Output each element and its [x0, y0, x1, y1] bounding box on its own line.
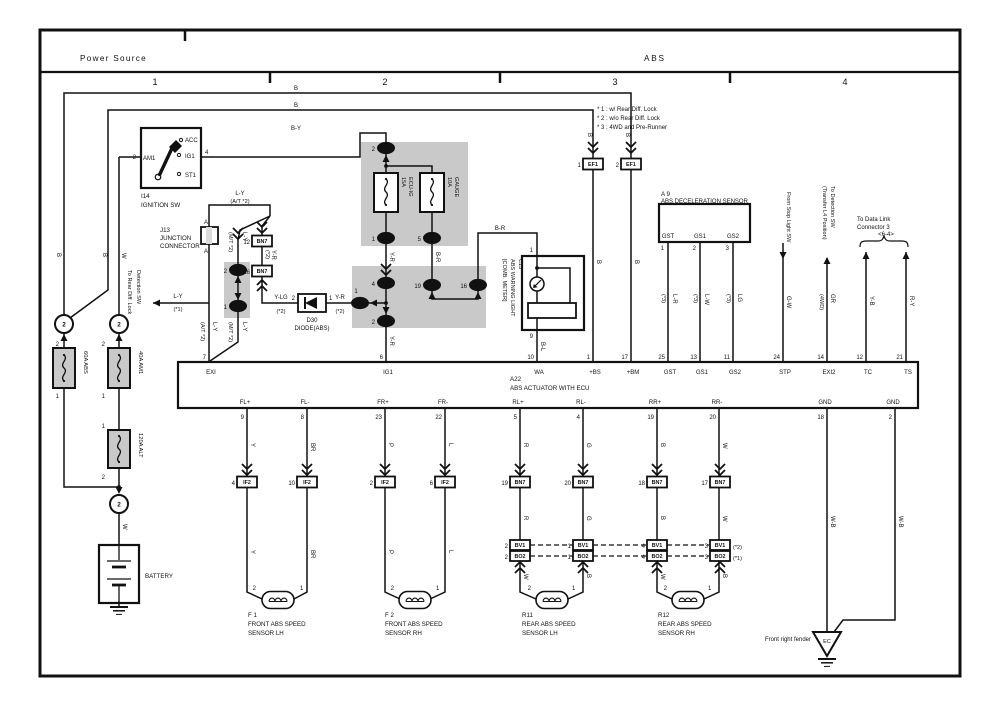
ecu-pin-label: EXI2: [822, 370, 836, 376]
ecu-pin-number: 22: [435, 415, 442, 421]
connector-label: BO2: [714, 554, 725, 560]
diagram-label: G: [585, 443, 591, 448]
junction-dot: [384, 164, 388, 168]
sensor-label: SENSOR RH: [385, 630, 422, 637]
sensor-label: FRONT ABS SPEED: [248, 621, 306, 628]
diagram-label: From Stop Light SW: [785, 192, 791, 243]
diagram-label: 2: [391, 586, 395, 592]
abs-wiring-diagram-page: 1I21G11F53B23B13H13H43H23D193D16EF11EF12…: [0, 0, 1000, 706]
diagram-label: * 1 : w/ Rear Diff. Lock: [597, 107, 658, 113]
diagram-label: W: [721, 443, 727, 449]
diagram-label: B-L: [539, 342, 545, 352]
connector-label: 3H: [383, 281, 390, 287]
diagram-label: R: [522, 443, 528, 448]
sensor-label: SENSOR LH: [248, 630, 284, 637]
diagram-label: G-W: [785, 296, 791, 309]
diagram-label: P: [387, 443, 393, 447]
diagram-label: B: [624, 133, 630, 137]
diagram-label: GR: [829, 294, 835, 304]
diagram-label: ABS WARNING LIGHT: [509, 259, 515, 317]
sensor-label: SENSOR RH: [658, 630, 695, 637]
wire: [209, 205, 270, 227]
pin-number: 2: [505, 555, 509, 561]
ecu-pin-label: WA: [534, 370, 543, 376]
diagram-label: AM1: [143, 156, 156, 162]
diagram-label: A 9: [661, 191, 671, 198]
diagram-label: <6-4>: [878, 232, 894, 238]
diagram-label: L-Y: [211, 322, 217, 331]
connector-label: BV1: [515, 543, 526, 549]
diagram-label: L-Y: [241, 322, 247, 331]
chevron-arrow-icon: [257, 222, 267, 227]
connector-label: BN7: [578, 480, 589, 486]
wire: [568, 561, 583, 599]
diagram-label: J13: [160, 227, 171, 234]
diagram-label: G: [585, 516, 591, 521]
diagram-label: B: [294, 86, 298, 92]
diagram-label: B: [721, 574, 727, 578]
connector-label: 3H: [383, 319, 390, 325]
diagram-label: L-R: [671, 294, 677, 304]
connector-label: BV1: [715, 543, 726, 549]
diagram-label: L-W: [703, 294, 709, 305]
wire: [657, 561, 672, 599]
diagram-label: 1: [530, 248, 534, 254]
diagram-label: 2: [664, 586, 668, 592]
diagram-label: (M/T *2): [227, 232, 233, 252]
diagram-label: Detection SW: [135, 270, 141, 305]
pin-number: 19: [501, 481, 508, 487]
diagram-label: Front right fender: [765, 637, 811, 643]
diagram-label: (*3): [725, 294, 731, 303]
pin-number: 2: [505, 544, 509, 550]
pin-number: 2: [616, 163, 620, 169]
diagram-label: 9: [530, 334, 534, 340]
diagram-label: 2: [102, 475, 106, 481]
diagram-label: W: [721, 516, 727, 522]
diagram-label: BATTERY: [145, 573, 173, 580]
diagram-label: (M/T *2): [227, 322, 233, 342]
diagram-label: C13: [517, 259, 523, 269]
diagram-label: LG: [736, 294, 742, 302]
connector-label: 1F: [429, 236, 436, 242]
diagram-label: Connector 3: [857, 225, 890, 231]
diagram-label: Y-R: [335, 295, 345, 301]
diagram-label: B: [586, 133, 592, 137]
diagram-label: 1: [329, 296, 333, 302]
diagram-label: L-Y: [173, 294, 182, 300]
connector-label: BO2: [577, 554, 588, 560]
diagram-label: W: [659, 574, 665, 580]
ecu-pin-label: FR-: [438, 400, 448, 406]
diagram-label: R-Y: [908, 296, 914, 306]
diagram-label: 1: [661, 246, 665, 252]
wire: [834, 408, 895, 632]
abs-wiring-diagram: 1I21G11F53B23B13H13H43H23D193D16EF11EF12…: [0, 0, 1000, 706]
diagram-label: I14: [141, 193, 150, 200]
sensor-label: SENSOR LH: [522, 630, 558, 637]
ecu-pin-number: 11: [724, 355, 731, 361]
diagram-label: 2: [133, 155, 137, 161]
sensor-label: R12: [658, 612, 670, 619]
diagram-label: JUNCTION: [160, 235, 191, 242]
header-center-title: ABS: [644, 54, 666, 63]
diagram-label: 1: [300, 586, 304, 592]
diagram-label: * 3 : 4WD and Pre-Runner: [597, 125, 667, 131]
sensor-label: R11: [522, 612, 533, 619]
diagram-label: B: [659, 443, 665, 447]
diagram-label: 1: [102, 394, 106, 400]
ecu-pin-number: 23: [375, 415, 382, 421]
wire: [294, 488, 307, 599]
diagram-label: IG1: [185, 154, 195, 160]
diagram-label: 2: [102, 342, 106, 348]
diagram-label: BR: [309, 443, 315, 452]
ecu-pin-number: 13: [690, 355, 697, 361]
ecu-pin-label: IG1: [383, 370, 393, 376]
diagram-label: 40A AM1: [137, 351, 143, 374]
diagram-label: ST1: [185, 173, 197, 179]
pin-number: 19: [414, 284, 421, 290]
ecu-pin-label: RL-: [576, 400, 586, 406]
switch-contact-icon: [177, 153, 180, 156]
diagram-label: 10A: [446, 177, 452, 187]
front-abs-speed-sensor-rh: [399, 592, 431, 609]
ecu-pin-number: 24: [773, 355, 780, 361]
ecu-pin-label: TC: [864, 370, 873, 376]
ecu-pin-label: FR+: [377, 400, 389, 406]
diagram-label: B: [659, 516, 665, 520]
connector-label: BN7: [652, 480, 663, 486]
ecu-pin-label: FL+: [240, 400, 251, 406]
diagram-label: W-B: [829, 516, 835, 528]
connector-label: BV1: [652, 543, 663, 549]
ecu-pin-number: 2: [889, 415, 893, 421]
fuse-end-dot: [431, 178, 433, 180]
ecu-pin-label: FL-: [301, 400, 310, 406]
pin-number: 4: [232, 481, 236, 487]
diagram-label: (A/T *2): [230, 199, 249, 205]
diagram-label: (*3): [692, 294, 698, 303]
connector-label: 2: [117, 501, 121, 508]
diagram-label: 3: [726, 246, 730, 252]
diagram-label: [COMB. METER]: [501, 259, 507, 302]
connector-label: BN7: [257, 269, 268, 275]
wire: [247, 488, 262, 599]
ecu-pin-number: 12: [856, 355, 863, 361]
junction-3h-3d-shade: [352, 266, 486, 328]
pin-number: 16: [460, 284, 467, 290]
pin-number: 10: [288, 481, 295, 487]
flow-arrow-icon: [824, 257, 831, 264]
ecu-pin-label: EXI: [206, 370, 216, 376]
connector-label: BV1: [578, 543, 589, 549]
diagram-label: R: [522, 516, 528, 521]
diagram-label: B: [585, 574, 591, 578]
diagram-label: (*2): [264, 250, 270, 259]
ecu-pin-label: STP: [779, 370, 791, 376]
diagram-label: IGNITION SW: [141, 202, 180, 209]
junction-dot: [384, 301, 388, 305]
ecu-pin-number: 4: [577, 415, 581, 421]
diagram-label: 120A ALT: [137, 433, 143, 458]
column-number: 4: [842, 77, 847, 87]
diagram-label: (*1): [173, 307, 182, 313]
wire: [520, 561, 536, 599]
connector-label: BO2: [514, 554, 525, 560]
diagram-label: B: [294, 103, 298, 109]
front-abs-speed-sensor-lh: [262, 592, 294, 609]
diagram-label: GST: [662, 234, 675, 240]
diagram-label: To Rear Diff. Lock: [126, 270, 132, 315]
ecu-pin-label: GS1: [696, 370, 709, 376]
diagram-label: ABS DECELERATION SENSOR: [661, 199, 749, 205]
pin-number: 2: [370, 481, 374, 487]
ecu-pin-number: 21: [896, 355, 903, 361]
diagram-label: 2: [292, 296, 296, 302]
diagram-label: EC: [823, 639, 831, 645]
diagram-label: (A/T *2): [199, 322, 205, 341]
pin-number: 1: [578, 163, 582, 169]
ecu-code: A22: [510, 376, 522, 383]
diagram-label: Y: [249, 443, 255, 447]
diagram-label: B: [101, 253, 107, 257]
flow-arrow-icon: [153, 300, 160, 307]
fuse-end-dot: [118, 435, 120, 437]
connector-label: EF1: [588, 162, 598, 168]
connector-label: 3D: [429, 283, 436, 289]
ecu-pin-number: 25: [658, 355, 665, 361]
diagram-label: 2: [528, 586, 532, 592]
ecu-pin-number: 9: [241, 415, 245, 421]
chevron-arrow-icon: [715, 568, 725, 573]
ecu-pin-number: 8: [301, 415, 305, 421]
diagram-label: 1: [56, 394, 60, 400]
fuse-end-dot: [63, 354, 65, 356]
ecu-pin-number: 14: [817, 355, 824, 361]
switch-contact-icon: [179, 138, 182, 141]
diagram-label: BR: [309, 550, 315, 559]
connector-label: IF2: [381, 480, 389, 486]
diagram-label: GAUGE: [453, 177, 459, 197]
diagram-label: GS2: [727, 234, 740, 240]
diagram-label: 15A: [400, 177, 406, 187]
ecu-pin-number: 20: [709, 415, 716, 421]
junction-dot: [535, 266, 539, 270]
connector-label: 3B: [235, 268, 242, 274]
flow-arrow-icon: [116, 334, 123, 341]
connector-label: 3B: [235, 304, 242, 310]
pin-number: 6: [430, 481, 434, 487]
diagram-label: (4WD): [818, 294, 824, 310]
diagram-label: (*1): [733, 556, 742, 562]
ecu-pin-label: GS2: [729, 370, 742, 376]
diagram-label: L: [447, 550, 453, 554]
ecu-pin-number: 18: [817, 415, 824, 421]
diagram-label: * 2 : w/o Rear Diff. Lock: [597, 116, 661, 122]
sensor-label: FRONT ABS SPEED: [385, 621, 443, 628]
connector-label: 1I: [384, 146, 389, 152]
flow-arrow-icon: [780, 252, 787, 259]
column-number: 3: [612, 77, 617, 87]
diagram-label: B-R: [495, 226, 506, 232]
diagram-label: W-B: [897, 516, 903, 528]
abs-inverter-box: [528, 303, 576, 318]
connector-label: IF2: [441, 480, 449, 486]
junction-dot: [117, 485, 121, 489]
diagram-label: W: [120, 253, 126, 259]
connector-label: BN7: [715, 480, 726, 486]
diagram-label: B: [633, 260, 639, 264]
connector-label: 1G: [382, 236, 389, 242]
diagram-label: B-Y: [291, 126, 301, 132]
connector-label: 2: [62, 321, 66, 328]
wire: [704, 561, 719, 599]
wire: [385, 488, 400, 599]
flow-arrow-icon: [863, 252, 870, 259]
diagram-label: A: [204, 220, 208, 226]
diagram-label: W: [121, 524, 127, 530]
flow-arrow-icon: [61, 334, 68, 341]
diagram-label: 60A ABS: [82, 351, 88, 374]
ecu-pin-label: GND: [818, 400, 832, 406]
diagram-label: 1: [102, 424, 106, 430]
ecu-pin-number: 5: [514, 415, 518, 421]
rear-abs-speed-sensor-lh: [536, 592, 568, 609]
ecu-pin-label: GND: [886, 400, 900, 406]
diagram-label: B-R: [434, 252, 440, 263]
diagram-label: Y-R: [388, 252, 394, 262]
diagram-label: To Data Link: [857, 217, 891, 223]
diagram-label: 1: [436, 586, 440, 592]
pin-number: 17: [701, 481, 708, 487]
diagram-label: (*3): [660, 294, 666, 303]
ecu-pin-number: 19: [647, 415, 654, 421]
ecu-name: ABS ACTUATOR WITH ECU: [510, 385, 590, 392]
column-number: 2: [382, 77, 387, 87]
ecu-pin-number: 17: [621, 355, 628, 361]
diagram-label: (*2): [335, 309, 344, 315]
chevron-arrow-icon: [715, 470, 725, 475]
diagram-label: (Transfer L4 Position): [821, 186, 827, 240]
connector-label: 3D: [475, 283, 482, 289]
connector-label: EF1: [626, 162, 636, 168]
connector-label: 2: [117, 321, 121, 328]
fuse-end-dot: [385, 178, 387, 180]
diagram-label: 2: [253, 586, 257, 592]
diagram-label: Y: [249, 550, 255, 554]
fuse-end-dot: [118, 461, 120, 463]
sensor-label: REAR ABS SPEED: [658, 621, 712, 628]
ecu-pin-label: +BM: [627, 370, 640, 376]
diagram-label: Y-R: [270, 250, 276, 260]
diagram-label: L-Y: [241, 232, 247, 241]
pin-number: 20: [564, 481, 571, 487]
diagram-label: L: [447, 443, 453, 447]
ecu-pin-label: TS: [904, 370, 912, 376]
ecu-pin-number: 7: [203, 355, 207, 361]
diagram-label: ACC: [185, 138, 198, 144]
chevron-arrow-icon: [715, 464, 725, 469]
sensor-label: F 1: [248, 612, 257, 619]
diagram-label: A: [204, 249, 208, 255]
ecu-pin-label: RR-: [712, 400, 723, 406]
diagram-label: 2: [693, 246, 697, 252]
pin-number: 16: [243, 270, 250, 276]
diagram-label: L-Y: [235, 191, 244, 197]
connector-label: BN7: [515, 480, 526, 486]
sensor-label: F 2: [385, 612, 394, 619]
fuse-end-dot: [431, 204, 433, 206]
diagram-label: Y-B: [868, 296, 874, 305]
chevron-arrow-icon: [715, 562, 725, 567]
diagram-label: (*2): [733, 545, 742, 551]
diagram-label: To Detection SW: [829, 186, 835, 228]
diagram-label: Y-LG: [274, 295, 288, 301]
diagram-label: ECU-IG: [407, 177, 413, 197]
switch-contact-icon: [177, 172, 180, 175]
ignition-key-icon: [159, 146, 173, 176]
diagram-label: P: [387, 550, 393, 554]
ecu-pin-label: RR+: [649, 400, 662, 406]
ecu-pin-label: RL+: [512, 400, 524, 406]
rear-abs-speed-sensor-rh: [672, 592, 704, 609]
fuse-end-dot: [118, 354, 120, 356]
connector-label: BO2: [651, 554, 662, 560]
j13-stripe: [206, 227, 212, 244]
wire: [201, 133, 386, 157]
ecu-pin-label: GST: [664, 370, 677, 376]
flow-arrow-icon: [903, 252, 910, 259]
pin-number: 18: [638, 481, 645, 487]
diagram-label: D30: [306, 318, 318, 324]
connector-label: IF2: [243, 480, 251, 486]
diagram-label: CONNECTOR: [160, 243, 200, 250]
diagram-label: 4: [205, 150, 209, 156]
ecu-pin-number: 10: [527, 355, 534, 361]
diagram-label: (*2): [276, 309, 285, 315]
fuse-end-dot: [385, 204, 387, 206]
fuse-end-dot: [118, 380, 120, 382]
connector-label: 3H: [357, 301, 364, 307]
diagram-label: Y-R: [388, 336, 394, 346]
column-number: 1: [152, 77, 157, 87]
ecu-pin-number: 6: [380, 355, 384, 361]
diagram-label: DIODE(ABS): [294, 326, 329, 332]
ecu-pin-number: 1: [587, 355, 591, 361]
diagram-label: B: [55, 253, 61, 257]
diagram-label: 1: [572, 586, 576, 592]
connector-label: IF2: [303, 480, 311, 486]
diagram-label: W: [522, 574, 528, 580]
diagram-label: B: [595, 260, 601, 264]
header-left-title: Power Source: [80, 54, 147, 63]
connector-label: BN7: [257, 239, 268, 245]
diagram-label: 1: [708, 586, 712, 592]
diagram-label: GS1: [694, 234, 707, 240]
ecu-pin-label: +BS: [589, 370, 601, 376]
fuse-end-dot: [63, 380, 65, 382]
sensor-label: REAR ABS SPEED: [522, 621, 576, 628]
wire: [430, 488, 445, 599]
